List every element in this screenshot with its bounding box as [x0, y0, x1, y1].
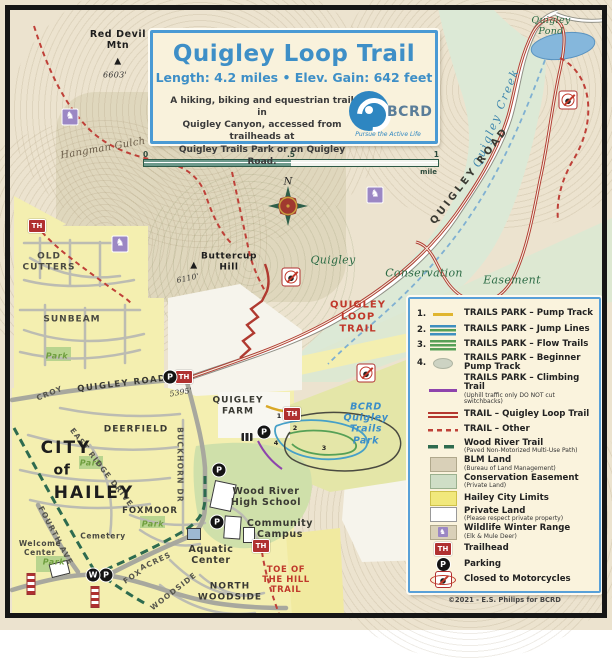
legend-label: Hailey City Limits: [464, 494, 593, 503]
label-park: Park: [46, 351, 68, 360]
legend-item: 4. TRAILS PARK – Beginner Pump Track: [417, 354, 593, 373]
legend-num: 1.: [417, 309, 428, 319]
wildlife-winter-range-swatch: ♞: [428, 525, 458, 539]
trail-marker-3: 3: [322, 444, 327, 452]
map-stats: Length: 4.2 miles • Elev. Gain: 642 feet: [153, 70, 435, 85]
quigley-loop-swatch: [428, 408, 458, 422]
campus-building: [223, 515, 242, 539]
aquatic-center-building: [187, 528, 201, 540]
trailhead-icon: TH: [283, 407, 301, 421]
label-conservation: Conservation: [385, 268, 463, 281]
legend-label: Trailhead: [464, 544, 593, 553]
legend-item: Conservation Easement(Private Land): [417, 474, 593, 490]
label-city: CITY: [41, 438, 92, 458]
legend-label: TRAILS PARK – Pump Track: [464, 309, 593, 318]
label-old-cutters: OLD CUTTERS: [23, 251, 76, 272]
label-red-devil-elev: 6603': [103, 70, 127, 79]
legend-item: 2. TRAILS PARK – Jump Lines: [417, 323, 593, 337]
compass-north-label: N: [284, 177, 293, 188]
label-park: Park: [142, 519, 164, 528]
legend-label: TRAIL – Other: [464, 425, 593, 434]
jump-lines-swatch: [428, 323, 458, 337]
label-community-campus: Community Campus: [247, 518, 313, 540]
bcrd-logo-text: BCRD: [387, 104, 432, 120]
flow-trails-swatch: [428, 338, 458, 352]
map-credit: ©2021 - E.S. Philips for BCRD: [408, 596, 601, 604]
legend-label: TRAILS PARK – Beginner Pump Track: [464, 354, 593, 373]
trail-other-swatch: [428, 423, 458, 437]
trailhead-icon: TH: [28, 219, 46, 233]
legend-item: Closed to Motorcycles: [417, 573, 593, 587]
legend-item: P Parking: [417, 557, 593, 571]
label-bcrd-trails-park: BCRD Quigley Trails Park: [344, 402, 389, 447]
label-conservation-quigley: Quigley: [310, 255, 355, 268]
welcome-icon: W: [86, 568, 101, 583]
trailhead-icon: TH: [252, 539, 270, 553]
trailhead-icon: TH: [175, 370, 193, 384]
bcrd-swirl-icon: [349, 91, 389, 131]
legend-item: 1. TRAILS PARK – Pump Track: [417, 307, 593, 321]
legend-item: BLM Land(Bureau of Land Management): [417, 456, 593, 472]
hailey-city-limits-swatch: [428, 491, 458, 505]
private-land-swatch: [428, 508, 458, 522]
pump-track-swatch: [428, 307, 458, 321]
parking-icon: P: [212, 463, 227, 478]
no-motorcycles-icon: [559, 91, 578, 110]
scale-unit: mile: [420, 168, 437, 176]
no-motorcycles-legend-swatch: [428, 573, 458, 587]
label-wood-river-hs: Wood River High School: [231, 486, 301, 508]
bcrd-tagline: Pursue the Active Life: [349, 131, 427, 138]
wildlife-icon: ♞: [367, 187, 384, 204]
parking-icon: P: [163, 370, 178, 385]
legend-item: ♞ Wildlife Winter Range(Elk & Mule Deer): [417, 524, 593, 540]
label-buttercup-hill: Buttercup Hill: [201, 251, 257, 272]
parking-icon: P: [257, 425, 272, 440]
label-north-woodside: NORTH WOODSIDE: [198, 581, 262, 602]
legend-item: TH Trailhead: [417, 542, 593, 556]
parking-icon: P: [99, 568, 114, 583]
legend-label: TRAIL – Quigley Loop Trail: [464, 410, 593, 419]
legend-label: TRAILS PARK – Climbing Trail: [464, 374, 593, 393]
trail-marker-2: 2: [293, 424, 298, 432]
wildlife-icon: ♞: [112, 236, 129, 253]
label-quigley-loop-trail: QUIGLEY LOOP TRAIL: [330, 299, 386, 334]
label-easement: Easement: [483, 275, 541, 288]
peak-triangle-icon: ▲: [114, 57, 122, 68]
trailhead-legend-swatch: TH: [428, 542, 458, 556]
parking-icon: P: [210, 515, 225, 530]
legend-label: TRAILS PARK – Jump Lines: [464, 325, 593, 334]
legend-item: TRAIL – Quigley Loop Trail: [417, 408, 593, 422]
legend-sublabel: (Bureau of Land Management): [464, 466, 593, 473]
label-red-devil-mtn: Red Devil Mtn: [90, 29, 146, 51]
conservation-easement-swatch: [428, 475, 458, 489]
trail-marker-1: 1: [277, 412, 282, 420]
restroom-icon: [242, 433, 253, 441]
scale-tick-0: 0: [143, 150, 148, 159]
legend-sublabel: (Paved Non-Motorized Multi-Use Path): [464, 448, 593, 455]
map-title: Quigley Loop Trail: [153, 41, 435, 67]
peak-triangle-icon: ▲: [190, 261, 198, 272]
blm-land-swatch: [428, 457, 458, 471]
parking-legend-swatch: P: [428, 557, 458, 571]
label-toe-of-the-hill: TOE OF THE HILL TRAIL: [262, 565, 310, 595]
legend-sublabel: (Please respect private property): [464, 516, 593, 523]
wildlife-icon: ♞: [62, 109, 79, 126]
label-buckhorn-dr: BUCKHORN DR: [175, 427, 184, 503]
label-deerfield: DEERFIELD: [104, 425, 169, 436]
label-aquatic-center: Aquatic Center: [189, 544, 234, 566]
legend-item: TRAILS PARK – Climbing Trail(Uphill traf…: [417, 374, 593, 406]
climbing-trail-swatch: [428, 383, 458, 397]
trail-marker-4: 4: [274, 439, 279, 447]
label-of: of: [54, 463, 71, 480]
legend-label: TRAILS PARK – Flow Trails: [464, 340, 593, 349]
title-box: Quigley Loop Trail Length: 4.2 miles • E…: [150, 30, 438, 144]
legend-item: Private Land(Please respect private prop…: [417, 507, 593, 523]
legend-label: Parking: [464, 560, 593, 569]
legend-item: Hailey City Limits: [417, 491, 593, 505]
map-description: A hiking, biking and equestrian trail in…: [167, 95, 357, 168]
label-sunbeam: SUNBEAM: [43, 315, 100, 326]
bcrd-logo: BCRD Pursue the Active Life: [347, 91, 425, 137]
label-foxmoor: FOXMOOR: [122, 506, 178, 516]
legend: 1. TRAILS PARK – Pump Track 2. TRAILS PA…: [408, 297, 601, 593]
striped-marker-icon: [91, 586, 100, 608]
no-motorcycles-icon: [357, 364, 376, 383]
scale-tick-1: 1: [434, 150, 439, 159]
label-quigley-farm: QUIGLEY FARM: [212, 395, 263, 416]
legend-label: Closed to Motorcycles: [464, 575, 593, 584]
wood-river-trail-swatch: [428, 440, 458, 454]
legend-item: Wood River Trail(Paved Non-Motorized Mul…: [417, 439, 593, 455]
legend-num: 3.: [417, 340, 428, 350]
legend-num: 4.: [417, 358, 428, 368]
trail-map: 0 .5 1 mile N Red Devil Mtn ▲ 6603' Quig…: [0, 0, 612, 630]
beginner-pump-track-swatch: [428, 356, 458, 370]
legend-sublabel: (Elk & Mule Deer): [464, 534, 593, 541]
legend-item: TRAIL – Other: [417, 423, 593, 437]
label-hailey: HAILEY: [54, 483, 134, 503]
striped-marker-icon: [27, 573, 36, 595]
legend-sublabel: (Uphill traffic only DO NOT cut switchba…: [464, 393, 593, 406]
legend-sublabel: (Private Land): [464, 483, 593, 490]
label-quigley-pond: Quigley Pond: [531, 15, 570, 37]
no-motorcycles-icon: [282, 268, 301, 287]
legend-num: 2.: [417, 325, 428, 335]
legend-item: 3. TRAILS PARK – Flow Trails: [417, 338, 593, 352]
label-cemetery: Cemetery: [80, 533, 126, 542]
